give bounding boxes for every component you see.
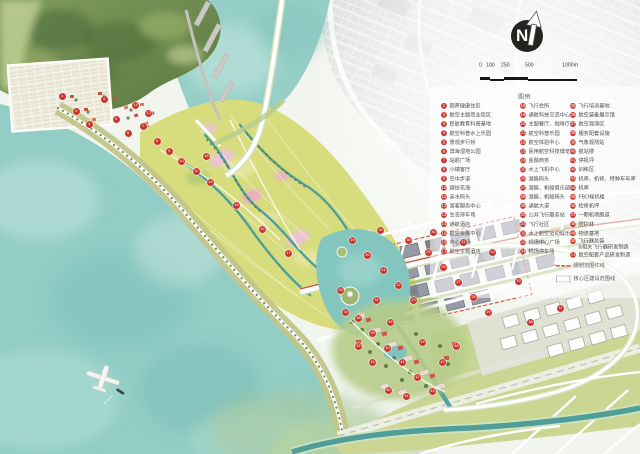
legend-item-label: 民用航空科技博览馆: [528, 147, 575, 154]
legend-item: 22航空体验中心: [520, 137, 575, 146]
legend-item: 21航空科普乐园: [520, 128, 575, 137]
legend-boundary-item: 规划范围红线: [556, 262, 605, 269]
legend-item-number: 12: [441, 203, 447, 209]
legend-item: 2航空主题商业街区: [441, 110, 491, 119]
legend-item: 33机场中心广场: [520, 238, 575, 247]
legend-item: 19通航科技交流中心: [520, 110, 575, 119]
legend-item: 13生态停车场: [441, 210, 491, 219]
legend-item-label: 景观步行桥: [449, 138, 475, 145]
legend-item-label: 航空科普水上乐园: [449, 129, 491, 136]
legend-item-label: 检修机坪: [578, 202, 599, 209]
legend-item-label: 小镇客厅: [449, 166, 470, 173]
legend-item-number: 2: [441, 112, 447, 118]
legend-item: 50飞行器总装 &相关飞行器研发制造: [570, 238, 636, 251]
legend-item-number: 18: [520, 103, 526, 109]
legend-item-label: 机库、机修、特种车车库: [578, 175, 635, 182]
legend-item: 9空中步道: [441, 174, 491, 183]
legend-item-number: 4: [441, 130, 447, 136]
legend-item-number: 46: [570, 203, 576, 209]
scale-tick-label: 250: [501, 62, 510, 68]
legend-item-number: 31: [520, 221, 526, 227]
scale-tick-label: 100: [486, 62, 495, 68]
legend-item-number: 1: [441, 103, 447, 109]
legend-item-number: 45: [570, 194, 576, 200]
legend-item-number: 39: [570, 139, 576, 145]
legend-item: 30公共飞行服务站: [520, 210, 575, 219]
legend-item-number: 16: [441, 239, 447, 245]
legend-item-label: 航空会展中心: [449, 229, 480, 236]
legend-item-number: 40: [570, 148, 576, 154]
scale-tick-label: 0: [479, 62, 482, 68]
legend-item-label: 颐养健康住区: [449, 102, 480, 109]
legend-item: 26游艇码头: [520, 174, 575, 183]
legend-item-number: 47: [570, 212, 576, 218]
legend-item: 38服务配套设施: [570, 128, 636, 137]
legend-item-label: 生态停车场: [449, 211, 475, 218]
legend-item: 40航站楼: [570, 147, 636, 156]
legend-item-number: 11: [441, 194, 447, 200]
legend-item-number: 43: [570, 175, 576, 181]
legend-item-number: 35: [570, 103, 576, 109]
legend-item-number: 6: [441, 148, 447, 154]
legend-item: 4航空科普水上乐园: [441, 128, 491, 137]
legend-item: 12游客服务中心: [441, 201, 491, 210]
legend-item-number: 17: [441, 248, 447, 254]
legend-item-number: 34: [520, 248, 526, 254]
legend-item: 15航空会展中心: [441, 228, 491, 237]
legend-item-number: 5: [441, 139, 447, 145]
legend-item-label: 机库: [578, 184, 588, 191]
legend-item-label: 通航大道: [528, 202, 549, 209]
legend-item-label: 民航教育科普基地: [449, 120, 491, 127]
legend-item-label: 站前广场: [449, 157, 470, 164]
legend-item-number: 23: [520, 148, 526, 154]
legend-item-number: 28: [520, 194, 526, 200]
legend-item-label: 停机坪: [578, 157, 594, 164]
legend-boundary-item: 核心区建设范围线: [556, 275, 615, 282]
legend-item: 14通航酒店: [441, 219, 491, 228]
legend-column: 35飞行培训基地36航空装备展示馆37航空观演区38服务配套设施39气象观测站4…: [570, 101, 636, 259]
legend-item-number: 3: [441, 121, 447, 127]
legend-item: 16中心广场: [441, 238, 491, 247]
legend-item-number: 37: [570, 121, 576, 127]
legend-title: 图例: [518, 92, 531, 101]
legend-item-number: 9: [441, 175, 447, 181]
legend-item-label: 公共飞行服务站: [528, 211, 564, 218]
legend-item-label: 游艇、帆船俱乐部: [528, 184, 570, 191]
legend-item-label: 航空主题酒店: [449, 248, 480, 255]
legend-item-label: 空中步道: [449, 175, 470, 182]
legend-item-label: 物流基地: [578, 229, 599, 236]
legend-item-label: 防护林: [578, 220, 594, 227]
legend-item: 27游艇、帆船俱乐部: [520, 183, 575, 192]
red-dashed-line-icon: [556, 265, 570, 266]
legend-item-label: 金融商务: [528, 157, 549, 164]
scale-bar-segment: [528, 79, 577, 81]
legend-item: 37航空观演区: [570, 119, 636, 128]
legend-boundary-label: 规划范围红线: [574, 262, 605, 269]
legend-item-label: 滨海湿地公园: [449, 147, 480, 154]
legend-item: 51航空配套产品研发制造: [570, 250, 636, 259]
legend-item-number: 15: [441, 230, 447, 236]
legend-item-label: 水上航空运动俱乐部: [528, 229, 575, 236]
legend-item: 49物流基地: [570, 228, 636, 237]
legend-item-number: 26: [520, 175, 526, 181]
legend-item-number: 21: [520, 130, 526, 136]
legend-item: 34机场停车场: [520, 247, 575, 256]
legend-item-number: 33: [520, 239, 526, 245]
legend-item-label: 服务配套设施: [578, 129, 609, 136]
legend-item-label: 航站楼: [578, 147, 594, 154]
legend-item-number: 25: [520, 166, 526, 172]
legend-item: 10缤纷花海: [441, 183, 491, 192]
legend-item-number: 41: [570, 157, 576, 163]
legend-item: 31飞行社区: [520, 219, 575, 228]
legend-item-label: 航空主题商业街区: [449, 111, 491, 118]
legend-item-number: 10: [441, 185, 447, 191]
legend-item-label: 飞行会所: [528, 102, 549, 109]
legend-item: 43机库、机修、特种车车库: [570, 174, 636, 183]
legend-item-label: 机场停车场: [528, 248, 554, 255]
legend-item: 17航空主题酒店: [441, 247, 491, 256]
legend-item-label: 飞行培训基地: [578, 102, 609, 109]
legend-item-label: 游艇、帆船码头: [528, 193, 564, 200]
legend-item: 35飞行培训基地: [570, 101, 636, 110]
legend-item-number: 50: [570, 238, 576, 244]
legend-item: 36航空装备展示馆: [570, 110, 636, 119]
legend-item: 24金融商务: [520, 156, 575, 165]
legend-item-number: 30: [520, 212, 526, 218]
legend-item-label: 飞行器总装 &相关飞行器研发制造: [578, 238, 628, 250]
legend-item: 18飞行会所: [520, 101, 575, 110]
legend-item: 25水上飞机中心: [520, 165, 575, 174]
legend-item-number: 44: [570, 185, 576, 191]
legend-item-label: 一期机场跑道: [578, 211, 609, 218]
legend-item-label: 通航酒店: [449, 220, 470, 227]
legend-item: 39气象观测站: [570, 137, 636, 146]
resort-cluster: [332, 300, 468, 400]
legend-item: 46检修机坪: [570, 201, 636, 210]
legend-item: 23民用航空科技博览馆: [520, 147, 575, 156]
legend-item: 3民航教育科普基地: [441, 119, 491, 128]
legend-item: 32水上航空运动俱乐部: [520, 228, 575, 237]
legend-item-label: 游客服务中心: [449, 202, 480, 209]
legend-item-number: 36: [570, 112, 576, 118]
legend-item-number: 13: [441, 212, 447, 218]
scale-bar-segment: [504, 77, 528, 80]
legend-item-number: 14: [441, 221, 447, 227]
legend-item-number: 22: [520, 139, 526, 145]
legend-item: 20主题餐厅、咖啡厅: [520, 119, 575, 128]
scale-tick-label: 500: [525, 62, 534, 68]
legend-item: 1颐养健康住区: [441, 101, 491, 110]
legend-item-number: 27: [520, 185, 526, 191]
legend-item-label: 飞行社区: [528, 220, 549, 227]
legend-item: 42训练区: [570, 165, 636, 174]
legend-item: 28游艇、帆船码头: [520, 192, 575, 201]
legend-item-label: 航空配套产品研发制造: [578, 251, 630, 258]
legend-item-label: 训练区: [578, 166, 594, 173]
legend-item-label: 游艇码头: [528, 175, 549, 182]
legend-column: 1颐养健康住区2航空主题商业街区3民航教育科普基地4航空科普水上乐园5景观步行桥…: [441, 101, 491, 256]
legend-item-number: 38: [570, 130, 576, 136]
legend-item-label: 中心广场: [449, 238, 470, 245]
legend-item: 45FBO候机楼: [570, 192, 636, 201]
legend-item-label: 航空科普乐园: [528, 129, 559, 136]
legend-item-label: 气象观测站: [578, 138, 604, 145]
scale-bar-segment: [490, 79, 504, 81]
residential-grid: [8, 59, 112, 132]
legend-item-number: 20: [520, 121, 526, 127]
legend-item-number: 42: [570, 166, 576, 172]
legend-item-label: 亲水码头: [449, 193, 470, 200]
legend-item-number: 49: [570, 230, 576, 236]
legend-boundary-label: 核心区建设范围线: [574, 275, 616, 282]
legend-item-number: 29: [520, 203, 526, 209]
legend-column: 18飞行会所19通航科技交流中心20主题餐厅、咖啡厅21航空科普乐园22航空体验…: [520, 101, 575, 256]
legend-item-number: 8: [441, 166, 447, 172]
legend-item-number: 7: [441, 157, 447, 163]
legend-item: 5景观步行桥: [441, 137, 491, 146]
legend-item-label: 通航科技交流中心: [528, 111, 570, 118]
north-label: N: [516, 26, 528, 46]
legend-item-label: FBO候机楼: [578, 193, 604, 200]
legend-item: 29通航大道: [520, 201, 575, 210]
scale-tick-label: 1000m: [562, 62, 578, 68]
legend-item: 41停机坪: [570, 156, 636, 165]
legend-item-number: 24: [520, 157, 526, 163]
legend-item: 8小镇客厅: [441, 165, 491, 174]
scale-bar-labels: 01002505001000m: [470, 62, 639, 70]
scale-bar-segment: [480, 77, 490, 80]
legend-item-number: 48: [570, 221, 576, 227]
legend-item-label: 主题餐厅、咖啡厅: [528, 120, 570, 127]
legend-item: 44机库: [570, 183, 636, 192]
legend-item-number: 51: [570, 252, 576, 258]
legend-item-number: 32: [520, 230, 526, 236]
legend-item: 48防护林: [570, 219, 636, 228]
legend-item: 7站前广场: [441, 156, 491, 165]
legend-item-label: 航空装备展示馆: [578, 111, 614, 118]
legend-item-label: 水上飞机中心: [528, 166, 559, 173]
legend-item: 11亲水码头: [441, 192, 491, 201]
legend-item: 47一期机场跑道: [570, 210, 636, 219]
masterplan-map: N 01002505001000m 图例 1颐养健康住区2航空主题商业街区3民航…: [0, 0, 640, 454]
dashed-box-icon: [556, 275, 570, 282]
legend-item-label: 机场中心广场: [528, 238, 559, 245]
legend-item-label: 航空体验中心: [528, 138, 559, 145]
legend-item: 6滨海湿地公园: [441, 147, 491, 156]
legend-item-number: 19: [520, 112, 526, 118]
legend-item-label: 航空观演区: [578, 120, 604, 127]
legend-item-label: 缤纷花海: [449, 184, 470, 191]
